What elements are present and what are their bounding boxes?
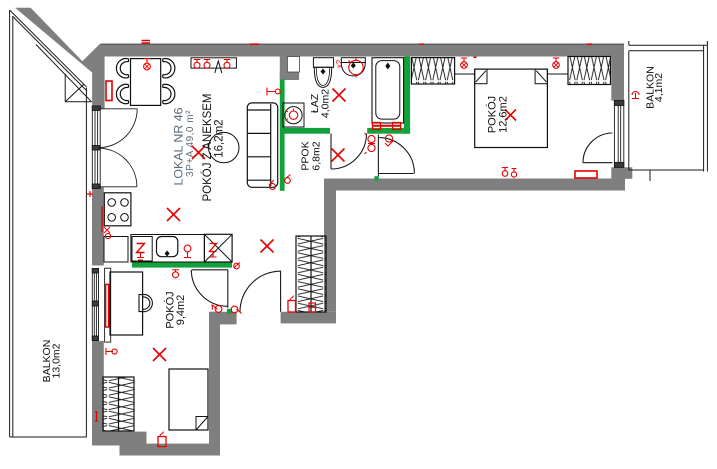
svg-text:LOKAL NR 46: LOKAL NR 46	[172, 107, 186, 185]
svg-text:13,0m2: 13,0m2	[50, 343, 62, 378]
svg-text:POKÓJ Z ANEKSEM: POKÓJ Z ANEKSEM	[201, 94, 214, 202]
svg-text:9,4m2: 9,4m2	[175, 295, 187, 326]
svg-text:16,2m2: 16,2m2	[214, 119, 226, 157]
svg-text:12,6m2: 12,6m2	[498, 96, 510, 133]
svg-text:6,8m2: 6,8m2	[311, 141, 323, 170]
svg-text:4,0m2: 4,0m2	[320, 89, 332, 118]
svg-text:3P+A 49,0 m²: 3P+A 49,0 m²	[185, 110, 196, 177]
svg-text:4,1m2: 4,1m2	[653, 73, 665, 102]
svg-text:x2: x2	[335, 59, 344, 68]
